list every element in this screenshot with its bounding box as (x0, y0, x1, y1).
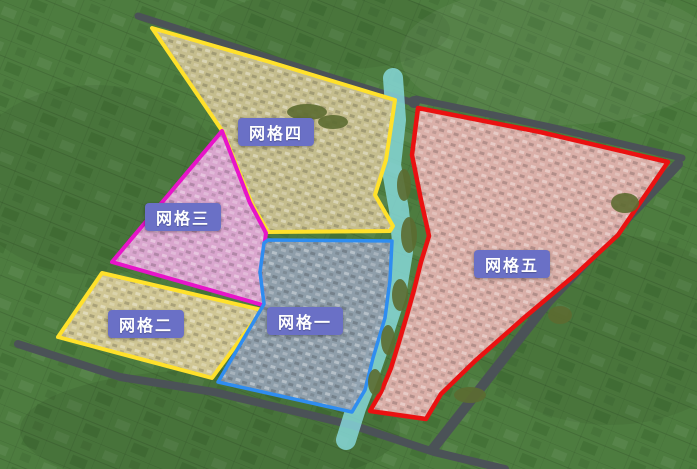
zone-grid1-label: 网格一 (267, 307, 343, 335)
zone-grid4-label: 网格四 (238, 118, 314, 146)
aerial-grid-map: 网格一 网格二 网格三 网格四 网格五 (0, 0, 697, 469)
map-canvas (0, 0, 697, 469)
zone-grid2-label: 网格二 (108, 310, 184, 338)
zone-grid3-label: 网格三 (145, 203, 221, 231)
zone-grid5-label: 网格五 (474, 250, 550, 278)
